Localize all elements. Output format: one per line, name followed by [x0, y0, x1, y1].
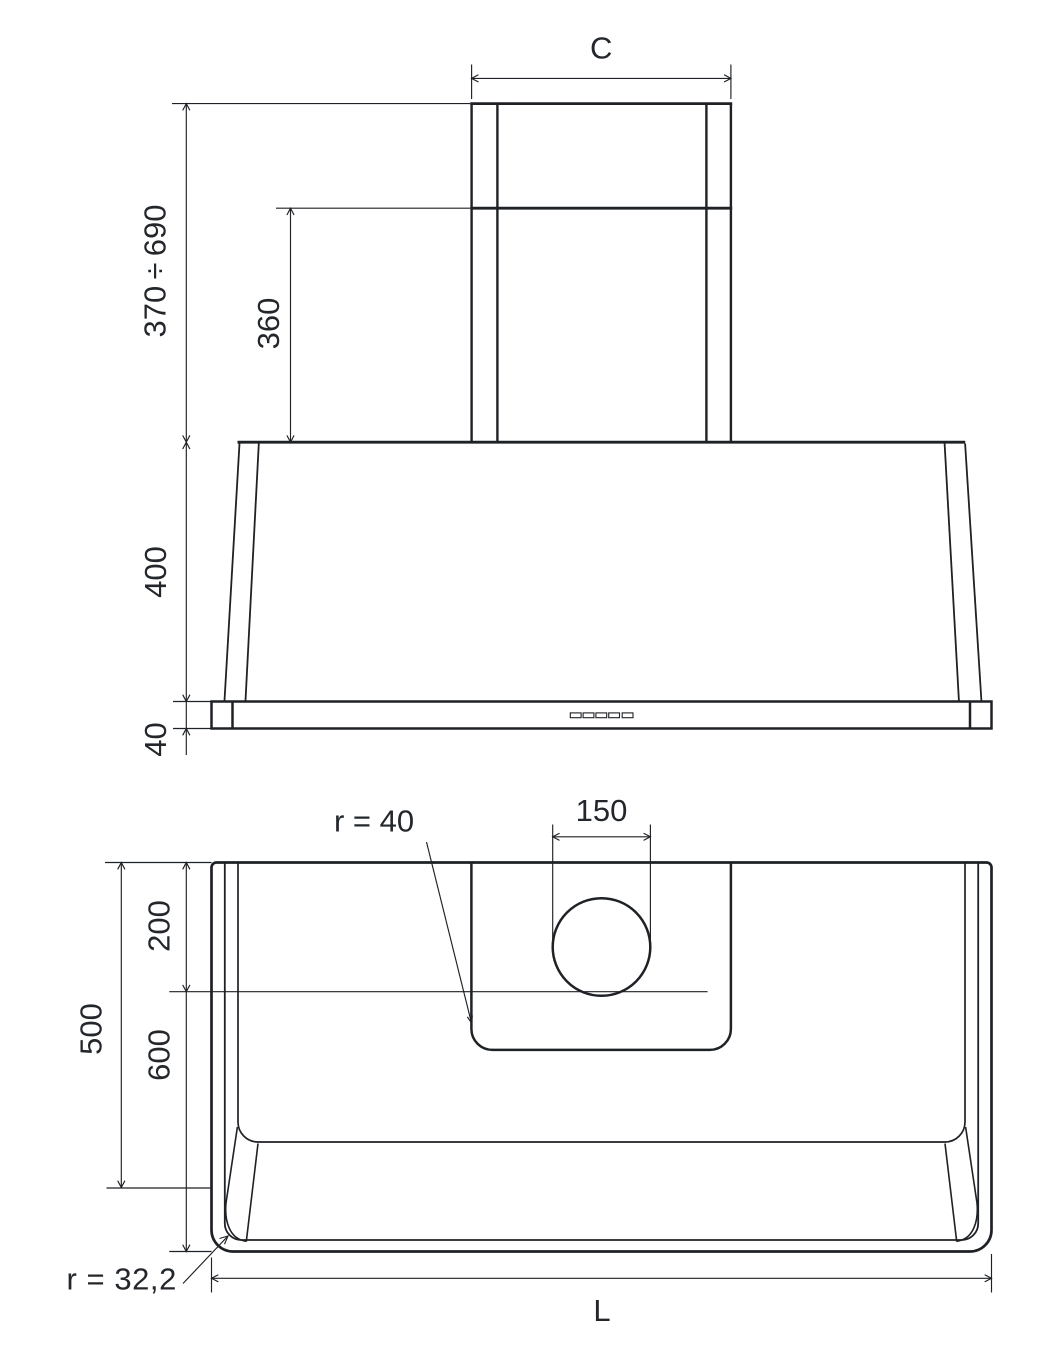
svg-text:C: C — [590, 31, 612, 66]
svg-text:200: 200 — [142, 900, 177, 952]
svg-text:360: 360 — [251, 298, 286, 350]
svg-text:500: 500 — [74, 1003, 109, 1055]
svg-text:600: 600 — [142, 1029, 177, 1081]
svg-text:150: 150 — [576, 793, 628, 828]
svg-text:40: 40 — [138, 722, 173, 756]
svg-text:370 ÷ 690: 370 ÷ 690 — [138, 205, 173, 338]
svg-text:r = 40: r = 40 — [334, 804, 414, 839]
svg-text:r = 32,2: r = 32,2 — [67, 1261, 177, 1296]
svg-text:400: 400 — [138, 546, 173, 598]
svg-text:L: L — [593, 1293, 610, 1328]
